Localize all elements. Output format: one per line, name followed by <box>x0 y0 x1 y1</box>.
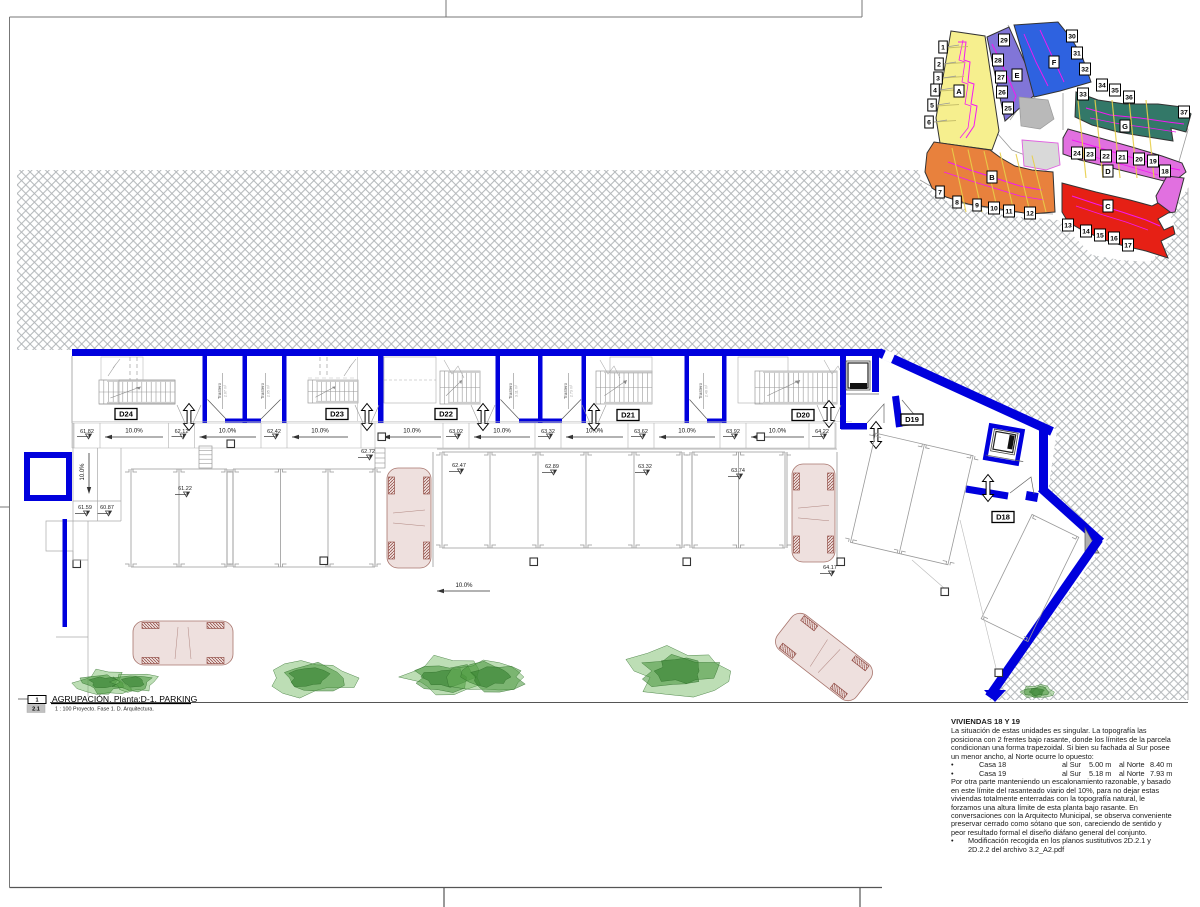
svg-text:D18: D18 <box>996 513 1010 522</box>
svg-text:D20: D20 <box>796 411 810 420</box>
svg-text:10.0%: 10.0% <box>80 463 86 481</box>
svg-text:1: 1 <box>35 698 38 704</box>
svg-text:33: 33 <box>1079 91 1087 98</box>
svg-text:10.0%: 10.0% <box>493 428 511 435</box>
svg-text:64.17: 64.17 <box>823 565 837 571</box>
svg-text:15: 15 <box>1096 232 1104 239</box>
svg-text:9: 9 <box>975 202 979 209</box>
svg-text:Trastero: Trastero <box>260 382 265 399</box>
svg-text:13: 13 <box>1064 222 1072 229</box>
svg-text:3: 3 <box>936 75 940 82</box>
svg-text:B: B <box>989 173 995 182</box>
svg-text:D22: D22 <box>439 410 453 419</box>
svg-text:D24: D24 <box>119 410 134 419</box>
svg-text:4: 4 <box>933 87 937 94</box>
svg-text:1 : 100 Proyecto. Fase 1. D. A: 1 : 100 Proyecto. Fase 1. D. Arquitectur… <box>55 707 154 713</box>
svg-text:32: 32 <box>1081 66 1089 73</box>
svg-text:10: 10 <box>990 205 998 212</box>
svg-text:7: 7 <box>938 189 942 196</box>
svg-text:10.0%: 10.0% <box>125 428 143 435</box>
svg-text:2.1: 2.1 <box>32 707 40 713</box>
svg-text:37: 37 <box>1180 109 1188 116</box>
svg-text:26: 26 <box>998 89 1006 96</box>
svg-text:18: 18 <box>1161 168 1169 175</box>
svg-text:11: 11 <box>1005 208 1012 215</box>
svg-text:E: E <box>1014 71 1019 80</box>
svg-text:2: 2 <box>937 61 941 68</box>
svg-text:20: 20 <box>1135 156 1143 163</box>
svg-text:A: A <box>956 87 962 96</box>
svg-text:10.0%: 10.0% <box>769 428 787 435</box>
svg-text:Trastero: Trastero <box>508 382 513 399</box>
svg-text:17: 17 <box>1124 242 1132 249</box>
svg-text:36: 36 <box>1125 94 1133 101</box>
svg-text:2.40 m²: 2.40 m² <box>705 384 709 397</box>
svg-text:31: 31 <box>1073 50 1081 57</box>
svg-text:2.07 m²: 2.07 m² <box>224 384 228 397</box>
svg-text:G: G <box>1122 122 1128 131</box>
svg-text:D: D <box>1105 167 1111 176</box>
svg-text:27: 27 <box>997 74 1005 81</box>
svg-text:F: F <box>1052 58 1057 67</box>
svg-text:24: 24 <box>1073 150 1081 157</box>
svg-text:62.47: 62.47 <box>452 463 466 469</box>
svg-text:2.05 m²: 2.05 m² <box>267 384 271 397</box>
svg-text:30: 30 <box>1068 33 1076 40</box>
svg-text:D19: D19 <box>905 415 919 424</box>
svg-text:60.87: 60.87 <box>100 505 114 511</box>
svg-text:D23: D23 <box>330 410 344 419</box>
svg-text:2.73 m²: 2.73 m² <box>570 384 574 397</box>
svg-text:28: 28 <box>994 57 1002 64</box>
svg-text:AGRUPACIÓN. Planta:D-1. PARKIN: AGRUPACIÓN. Planta:D-1. PARKING <box>52 694 198 704</box>
svg-text:29: 29 <box>1000 37 1008 44</box>
svg-text:23: 23 <box>1086 151 1094 158</box>
svg-text:12: 12 <box>1026 210 1034 217</box>
svg-text:10.0%: 10.0% <box>403 428 421 435</box>
svg-text:14: 14 <box>1082 228 1090 235</box>
svg-text:34: 34 <box>1098 82 1106 89</box>
svg-text:10.0%: 10.0% <box>311 428 329 435</box>
svg-text:63.74: 63.74 <box>731 468 745 474</box>
svg-text:8: 8 <box>955 199 959 206</box>
svg-text:Trastero: Trastero <box>563 382 568 399</box>
svg-text:19: 19 <box>1149 158 1157 165</box>
svg-text:10.0%: 10.0% <box>586 428 604 435</box>
svg-text:5: 5 <box>930 102 934 109</box>
svg-text:10.0%: 10.0% <box>455 583 473 589</box>
svg-text:61.59: 61.59 <box>78 505 92 511</box>
svg-text:25: 25 <box>1004 105 1012 112</box>
svg-text:21: 21 <box>1118 154 1126 161</box>
svg-text:C: C <box>1105 202 1111 211</box>
svg-text:62.72: 62.72 <box>361 449 375 455</box>
svg-text:6: 6 <box>927 119 931 126</box>
svg-text:35: 35 <box>1111 87 1119 94</box>
svg-text:10.0%: 10.0% <box>678 428 696 435</box>
svg-text:Trastero: Trastero <box>698 382 703 399</box>
svg-text:62.89: 62.89 <box>545 464 559 470</box>
svg-text:16: 16 <box>1110 235 1118 242</box>
svg-text:22: 22 <box>1102 153 1110 160</box>
svg-text:Trastero: Trastero <box>217 382 222 399</box>
svg-text:D21: D21 <box>621 411 635 420</box>
svg-text:1: 1 <box>941 44 945 51</box>
svg-text:63.32: 63.32 <box>638 464 652 470</box>
svg-text:3.11 m²: 3.11 m² <box>515 384 519 397</box>
svg-text:61.22: 61.22 <box>178 486 192 492</box>
svg-text:10.0%: 10.0% <box>219 428 237 435</box>
